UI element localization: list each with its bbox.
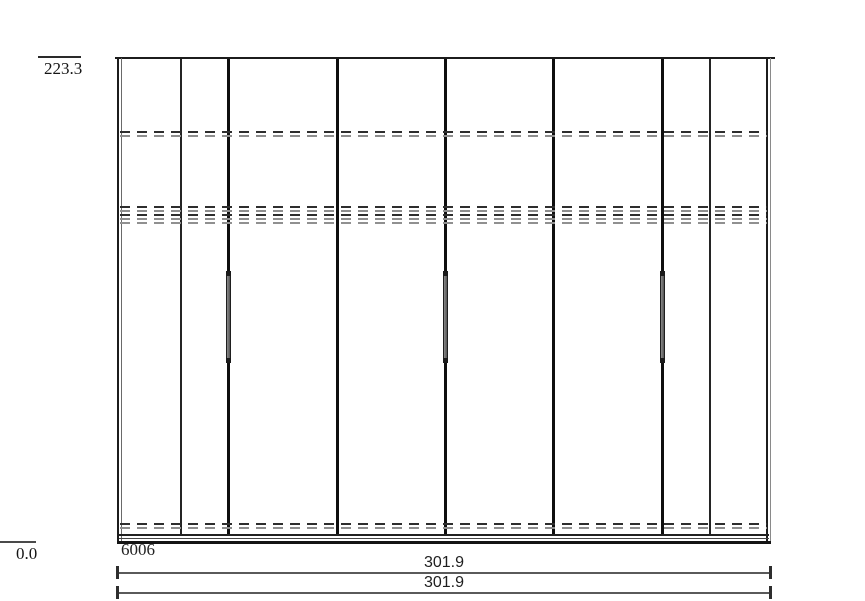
- wardrobe-left-edge-outer: [117, 57, 119, 544]
- door-handle-3[interactable]: [660, 272, 665, 362]
- door-handle-1[interactable]: [226, 272, 231, 362]
- wardrobe-right-edge-outer: [770, 58, 772, 544]
- door-handle-2[interactable]: [443, 272, 448, 362]
- wardrobe-bottom-line: [119, 538, 769, 539]
- elevation-marker-bottom-line: [0, 541, 36, 543]
- shelf-hidden-line-3: [120, 214, 767, 220]
- elevation-marker-top-value: 223.3: [44, 59, 82, 79]
- dimension-value-1: 301.9: [117, 554, 771, 572]
- dimension-value-2: 301.9: [117, 574, 771, 592]
- wardrobe-bottom-edge-thick: [117, 541, 771, 544]
- shelf-hidden-line-4: [120, 222, 767, 224]
- shelf-hidden-line-1: [120, 131, 767, 137]
- wardrobe-drawing[interactable]: [117, 57, 771, 544]
- elevation-marker-bottom-value: 0.0: [16, 544, 37, 564]
- drawing-canvas: 223.3 0.0 6006 301.9 301.9: [0, 0, 865, 601]
- elevation-marker-top-line: [38, 56, 81, 58]
- shelf-hidden-line-2: [120, 206, 767, 212]
- shelf-hidden-line-5: [120, 523, 767, 529]
- door-bottom-line: [119, 534, 769, 536]
- dimension-rule-2: [117, 592, 771, 594]
